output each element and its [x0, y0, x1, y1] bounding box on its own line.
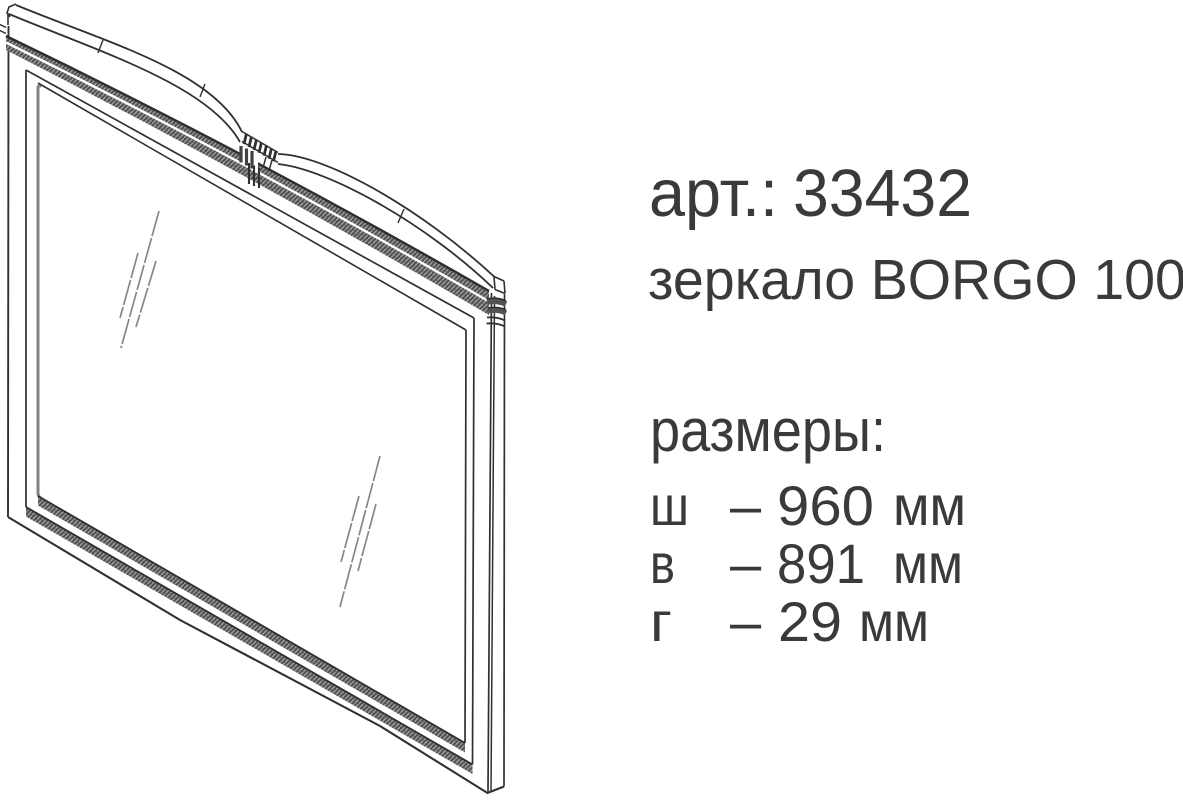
svg-text:арт.:: арт.:	[649, 156, 778, 231]
svg-text:мм: мм	[893, 474, 966, 537]
svg-text:в: в	[650, 532, 675, 595]
svg-text:–: –	[730, 474, 762, 537]
svg-text:мм: мм	[859, 590, 929, 653]
svg-text:960: 960	[777, 474, 874, 537]
svg-text:ш: ш	[650, 474, 689, 537]
svg-text:зеркало BORGO 100: зеркало BORGO 100	[648, 248, 1183, 312]
svg-text:29: 29	[778, 590, 842, 653]
svg-text:33432: 33432	[793, 156, 972, 231]
svg-text:–: –	[730, 590, 762, 653]
svg-text:891: 891	[777, 532, 865, 595]
svg-text:размеры:: размеры:	[650, 397, 886, 464]
svg-text:мм: мм	[893, 532, 963, 595]
svg-text:–: –	[730, 532, 762, 595]
svg-text:г: г	[650, 590, 672, 653]
